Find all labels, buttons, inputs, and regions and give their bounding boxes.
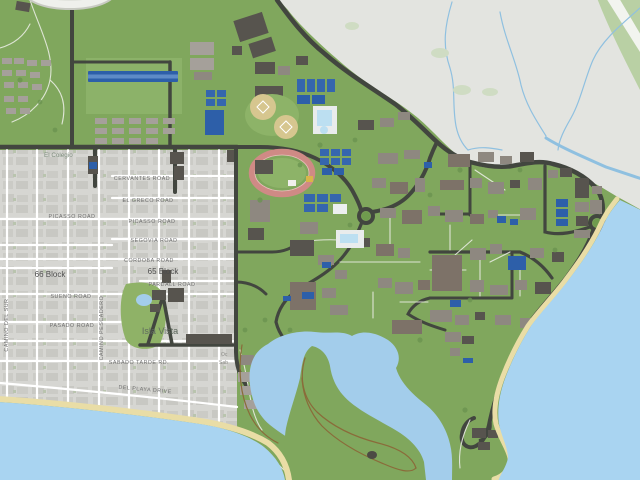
town-label-isla-vista: Isla Vista [142,326,178,336]
street-label-pardall-road: PARDALL ROAD [149,282,196,288]
campus-pool [336,230,364,248]
street-label-el-greco-road: EL GRECO ROAD [122,198,173,204]
map-canvas[interactable]: El Colegio CERVANTES ROAD EL GRECO ROAD … [0,0,640,480]
area-label-65-block: 65 Block [148,267,180,276]
street-label-cervantes-road: CERVANTES ROAD [114,176,170,182]
area-label-el-colegio: El Colegio [44,152,73,159]
area-label-66-block: 66 Block [35,270,67,279]
partial-label-line1: Oc [221,352,228,358]
partial-label-line2: Sab [219,360,228,366]
street-label-camino-pescadero: CAMINO PESCADERO [99,296,105,361]
street-label-sabado-tarde-rd: SABADO TARDE RD. [109,360,169,366]
courts-south-cluster [304,194,347,214]
rec-center-pool [313,106,337,134]
highlighted-long-building [88,71,178,82]
street-label-pasado-road: PASADO ROAD [50,323,95,329]
street-label-sueno-road: SUENO ROAD [50,294,91,300]
street-label-cordoba-road: CORDOBA ROAD [124,258,174,264]
street-label-picasso-road-west: PICASSO ROAD [49,214,96,220]
storke-field [86,58,182,114]
campus-map[interactable]: El Colegio CERVANTES ROAD EL GRECO ROAD … [0,0,640,480]
park-pond [136,294,152,306]
street-label-camino-del-sur: CAMINO DEL SUR [4,298,10,351]
street-label-picasso-road-east: PICASSO ROAD [129,219,176,225]
street-label-segovia-road: SEGOVIA ROAD [131,238,178,244]
